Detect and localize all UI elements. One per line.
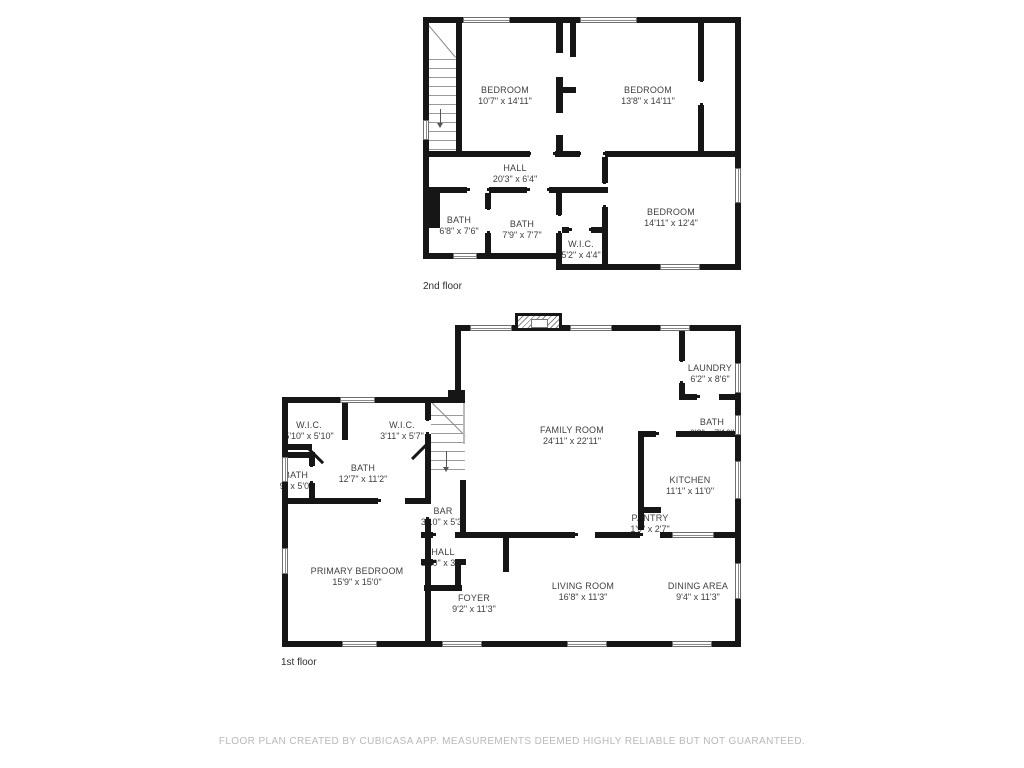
- door-marker: [467, 188, 470, 191]
- door-marker: [487, 231, 490, 234]
- wall: [282, 641, 342, 647]
- door-marker: [700, 103, 703, 106]
- window: [735, 168, 741, 203]
- wall: [425, 434, 431, 503]
- wall: [423, 17, 429, 120]
- wall: [555, 151, 580, 157]
- room-label-bath-main: BATH 12'7" x 11'2": [339, 463, 388, 485]
- window: [735, 461, 741, 499]
- room-name: PANTRY: [630, 513, 669, 524]
- room-name: DINING AREA: [668, 581, 728, 592]
- window: [453, 253, 477, 259]
- window: [735, 415, 741, 435]
- room-dimensions: 7'9" x 7'7": [502, 230, 541, 241]
- wall: [735, 203, 741, 270]
- room-dimensions: 12'7" x 11'2": [339, 474, 388, 485]
- wall: [342, 403, 348, 440]
- door-marker: [603, 205, 606, 208]
- bathtub-block: [427, 188, 440, 228]
- room-dimensions: 13'8" x 14'11": [621, 96, 675, 107]
- disclaimer-text: FLOOR PLAN CREATED BY CUBICASA APP. MEAS…: [0, 736, 1024, 747]
- first-floor-plan: FAMILY ROOM 24'11" x 22'11" LAUNDRY 6'2"…: [282, 313, 741, 647]
- wall: [455, 532, 575, 538]
- door-marker: [426, 501, 429, 504]
- wall: [602, 157, 608, 183]
- room-label-bath-1: BATH 6'8" x 7'6": [439, 215, 478, 237]
- window: [570, 325, 612, 331]
- room-label-wic-2f: W.I.C. 5'2" x 4'4": [561, 239, 600, 261]
- room-dimensions: 10'7" x 14'11": [478, 96, 532, 107]
- window: [282, 457, 288, 482]
- wall: [612, 325, 660, 331]
- wall: [570, 23, 576, 57]
- room-name: W.I.C.: [284, 420, 333, 431]
- wall: [425, 519, 431, 641]
- door-marker: [310, 481, 313, 484]
- window: [672, 641, 712, 647]
- room-name: BEDROOM: [644, 207, 698, 218]
- door-marker: [426, 517, 429, 520]
- room-label-living-room: LIVING ROOM 16'8" x 11'3": [552, 581, 614, 603]
- window: [470, 325, 512, 331]
- stair-arrow: [437, 123, 443, 128]
- room-name: BATH: [690, 417, 734, 428]
- room-dimensions: 14'11" x 12'4": [644, 218, 698, 229]
- room-dimensions: 11'1" x 11'0": [666, 486, 714, 497]
- wall: [375, 397, 455, 403]
- door-marker: [528, 152, 531, 155]
- window: [660, 264, 700, 270]
- room-label-wic-2: W.I.C. 3'11" x 5'7": [380, 420, 424, 442]
- door-marker: [487, 207, 490, 210]
- second-floor-label: 2nd floor: [423, 281, 462, 292]
- door-marker: [558, 213, 561, 216]
- wall: [679, 394, 697, 400]
- door-marker: [578, 152, 581, 155]
- room-dimensions: 6'2" x 8'6": [688, 374, 732, 385]
- wall: [607, 641, 672, 647]
- room-dimensions: 15'9" x 15'0": [311, 577, 404, 588]
- door-marker: [426, 432, 429, 435]
- door-marker: [547, 188, 550, 191]
- window: [567, 641, 607, 647]
- window: [423, 120, 429, 140]
- room-label-laundry: LAUNDRY 6'2" x 8'6": [688, 363, 732, 385]
- door-marker: [656, 432, 659, 435]
- room-name: FOYER: [452, 593, 496, 604]
- room-label-dining-area: DINING AREA 9'4" x 11'3": [668, 581, 728, 603]
- wall: [698, 105, 704, 157]
- room-name: KITCHEN: [666, 475, 714, 486]
- wall: [556, 23, 563, 53]
- door-marker: [697, 395, 700, 398]
- wall: [556, 233, 562, 253]
- room-dimensions: 6'8" x 7'6": [439, 226, 478, 237]
- door-marker: [455, 533, 458, 536]
- wall: [556, 193, 562, 215]
- room-name: W.I.C.: [561, 239, 600, 250]
- wall: [423, 253, 453, 259]
- door-marker: [603, 181, 606, 184]
- floorplan-canvas: BEDROOM 10'7" x 14'11" BEDROOM 13'8" x 1…: [0, 0, 1024, 768]
- room-label-bedroom-1: BEDROOM 10'7" x 14'11": [478, 85, 532, 107]
- room-label-wic-1: W.I.C. 5'10" x 5'10": [284, 420, 333, 442]
- wall: [595, 532, 640, 538]
- wall: [562, 325, 570, 331]
- room-label-family-room: FAMILY ROOM 24'11" x 22'11": [540, 425, 604, 447]
- window: [735, 363, 741, 393]
- wall: [282, 397, 340, 403]
- door-marker: [640, 533, 643, 536]
- window: [340, 397, 375, 403]
- window: [342, 641, 377, 647]
- wall: [282, 574, 288, 647]
- door-marker: [589, 228, 592, 231]
- window: [660, 325, 690, 331]
- door-marker: [595, 533, 598, 536]
- room-name: BEDROOM: [621, 85, 675, 96]
- door-marker: [426, 418, 429, 421]
- stair-arrow: [443, 467, 449, 472]
- window: [463, 17, 510, 23]
- room-dimensions: 9'2" x 11'3": [452, 604, 496, 615]
- door-marker: [660, 533, 663, 536]
- wall: [690, 325, 741, 331]
- room-name: LIVING ROOM: [552, 581, 614, 592]
- wall: [421, 559, 433, 565]
- door-marker: [378, 499, 381, 502]
- window: [282, 548, 288, 574]
- stair-treads: [429, 51, 456, 151]
- room-label-kitchen: KITCHEN 11'1" x 11'0": [666, 475, 714, 497]
- door-marker: [719, 395, 722, 398]
- second-floor-plan: BEDROOM 10'7" x 14'11" BEDROOM 13'8" x 1…: [423, 17, 741, 270]
- wall: [714, 532, 741, 538]
- wall: [456, 23, 462, 151]
- room-dimensions: 5'2" x 4'4": [561, 250, 600, 261]
- wall: [735, 435, 741, 461]
- room-name: LAUNDRY: [688, 363, 732, 374]
- wall: [638, 507, 661, 513]
- wall: [735, 499, 741, 563]
- wall: [637, 17, 741, 23]
- wall: [676, 431, 741, 437]
- wall: [503, 538, 509, 572]
- room-dimensions: 3'11" x 5'7": [380, 431, 424, 442]
- wall: [460, 480, 466, 532]
- room-name: HALL: [493, 163, 537, 174]
- door-marker: [700, 79, 703, 82]
- room-dimensions: 9'4" x 11'3": [668, 592, 728, 603]
- door-marker: [558, 231, 561, 234]
- door-marker: [603, 152, 606, 155]
- door-marker: [487, 188, 490, 191]
- door-marker: [676, 432, 679, 435]
- door-marker: [527, 188, 530, 191]
- door-marker: [433, 533, 436, 536]
- room-dimensions: 20'3" x 6'4": [493, 174, 537, 185]
- wall: [556, 135, 563, 151]
- door-marker: [575, 533, 578, 536]
- room-name: BEDROOM: [478, 85, 532, 96]
- door-marker: [553, 152, 556, 155]
- door-marker: [455, 560, 458, 563]
- door-marker: [569, 228, 572, 231]
- wall: [556, 264, 660, 270]
- fireplace: [515, 313, 562, 331]
- wall: [679, 331, 685, 361]
- room-name: FAMILY ROOM: [540, 425, 604, 436]
- room-name: PRIMARY BEDROOM: [311, 566, 404, 577]
- room-label-bedroom-2: BEDROOM 13'8" x 14'11": [621, 85, 675, 107]
- door-marker: [310, 464, 313, 467]
- first-floor-label: 1st floor: [281, 657, 317, 668]
- wall: [556, 77, 563, 113]
- wall: [719, 394, 741, 400]
- wall: [377, 641, 442, 647]
- room-name: BAR: [421, 506, 465, 517]
- door-marker: [405, 499, 408, 502]
- room-name: BATH: [502, 219, 541, 230]
- wall: [485, 233, 491, 259]
- wall: [563, 87, 576, 93]
- room-label-bath-2: BATH 7'9" x 7'7": [502, 219, 541, 241]
- window: [735, 563, 741, 599]
- room-dimensions: 16'8" x 11'3": [552, 592, 614, 603]
- room-name: BATH: [339, 463, 388, 474]
- wall: [602, 207, 608, 264]
- door-marker: [680, 381, 683, 384]
- room-dimensions: 24'11" x 22'11": [540, 436, 604, 447]
- room-name: W.I.C.: [380, 420, 424, 431]
- wall: [735, 17, 741, 168]
- wall: [591, 227, 608, 233]
- wall: [482, 641, 567, 647]
- wall: [282, 482, 288, 548]
- window: [442, 641, 482, 647]
- wall: [512, 325, 515, 331]
- stair-edge: [463, 402, 465, 444]
- door-marker: [433, 560, 436, 563]
- wall: [605, 151, 741, 157]
- room-name: BATH: [439, 215, 478, 226]
- wall: [285, 444, 312, 450]
- wall: [282, 498, 378, 504]
- wall: [735, 325, 741, 363]
- room-label-hall-2f: HALL 20'3" x 6'4": [493, 163, 537, 185]
- wall: [489, 187, 527, 193]
- wall: [698, 23, 704, 81]
- wall: [638, 437, 644, 530]
- window: [580, 17, 637, 23]
- wall: [735, 599, 741, 647]
- room-label-primary-bedroom: PRIMARY BEDROOM 15'9" x 15'0": [311, 566, 404, 588]
- room-label-foyer: FOYER 9'2" x 11'3": [452, 593, 496, 615]
- wall: [562, 227, 569, 233]
- door-marker: [680, 359, 683, 362]
- wall: [423, 151, 530, 157]
- room-label-bedroom-3: BEDROOM 14'11" x 12'4": [644, 207, 698, 229]
- room-dimensions: 5'10" x 5'10": [284, 431, 333, 442]
- window: [672, 532, 714, 538]
- wall: [424, 585, 462, 591]
- wall: [448, 390, 465, 403]
